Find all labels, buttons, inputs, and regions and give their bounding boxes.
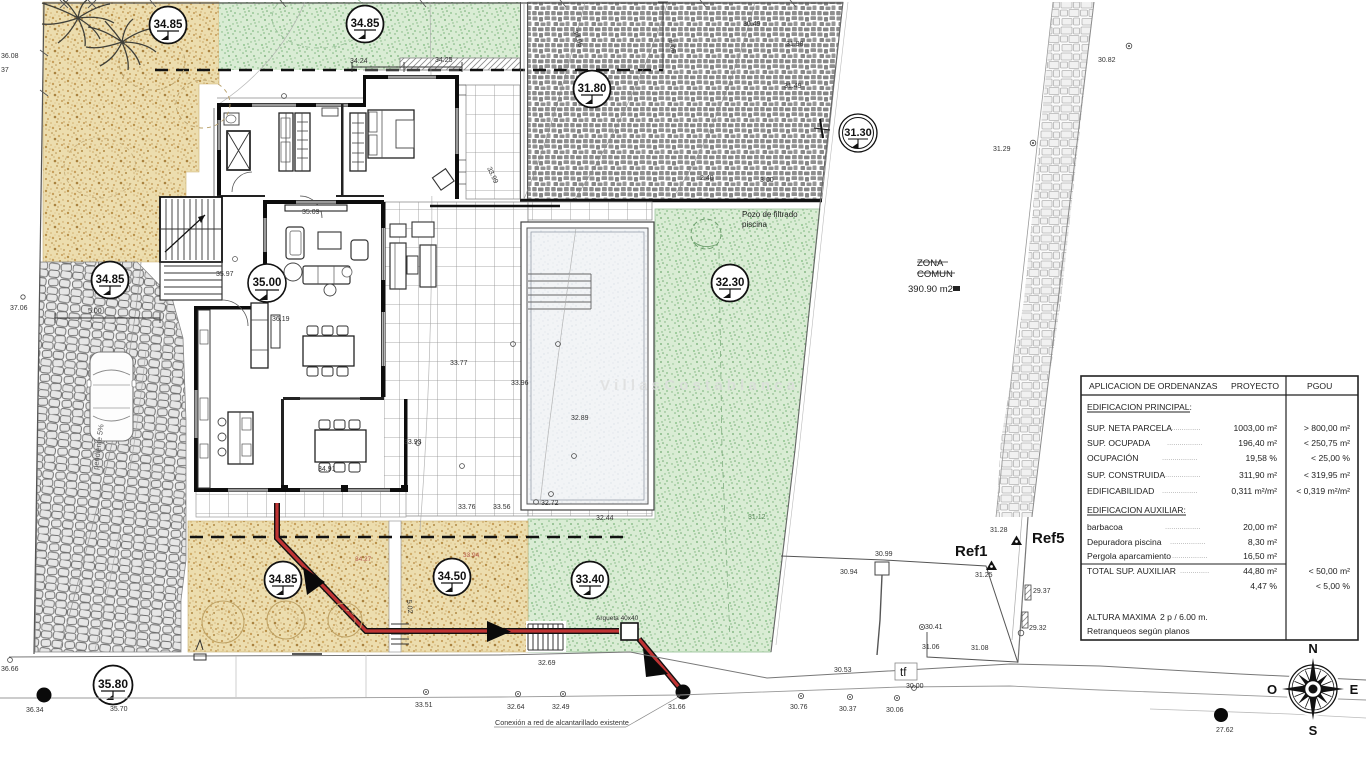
- svg-text:2 p / 6.00 m.: 2 p / 6.00 m.: [1160, 612, 1208, 622]
- svg-text:.................: .................: [1170, 537, 1205, 546]
- svg-text:16,50 m²: 16,50 m²: [1243, 551, 1277, 561]
- svg-text:34.27: 34.27: [355, 556, 372, 563]
- svg-text:30.00: 30.00: [906, 683, 924, 690]
- svg-text:30.76: 30.76: [790, 704, 808, 711]
- svg-text:36.66: 36.66: [1, 666, 19, 673]
- svg-text:5.02: 5.02: [405, 600, 413, 614]
- svg-text:33.40: 33.40: [576, 574, 605, 586]
- svg-text:.................: .................: [1172, 551, 1207, 560]
- svg-text:31.08: 31.08: [971, 645, 989, 652]
- svg-text:< 50,00 m²: < 50,00 m²: [1309, 566, 1350, 576]
- svg-text:..............: ..............: [1180, 566, 1209, 575]
- svg-text:> 800,00 m²: > 800,00 m²: [1304, 423, 1350, 433]
- svg-text:.................: .................: [1162, 453, 1197, 462]
- svg-text:V i l l a s C o s t a b l a n: V i l l a s C o s t a b l a n c a: [600, 377, 796, 394]
- svg-text:34.91: 34.91: [318, 466, 336, 473]
- svg-text:30.94: 30.94: [840, 569, 858, 576]
- svg-text:SUP. CONSTRUIDA: SUP. CONSTRUIDA: [1087, 470, 1165, 480]
- svg-text:30.06: 30.06: [886, 707, 904, 714]
- svg-text:32.49: 32.49: [552, 704, 570, 711]
- svg-text:33.56: 33.56: [493, 504, 511, 511]
- svg-text:2.40: 2.40: [700, 175, 714, 182]
- svg-text:32.30: 32.30: [716, 277, 745, 289]
- svg-text:COMUN: COMUN: [917, 269, 953, 280]
- svg-text:44,80 m²: 44,80 m²: [1243, 566, 1277, 576]
- svg-text:30.99: 30.99: [875, 551, 893, 558]
- svg-text:Conexión a red de alcantarilla: Conexión a red de alcantarillado existen…: [495, 718, 629, 727]
- svg-text:34.50: 34.50: [438, 571, 467, 583]
- svg-text:35.09: 35.09: [302, 209, 320, 216]
- svg-text:35.00: 35.00: [253, 277, 282, 289]
- svg-text:31.29: 31.29: [993, 146, 1011, 153]
- svg-text:< 5,00 %: < 5,00 %: [1316, 581, 1351, 591]
- svg-text:30.49: 30.49: [743, 21, 761, 28]
- svg-text:ALTURA MAXIMA: ALTURA MAXIMA: [1087, 612, 1156, 622]
- svg-text:8,30 m²: 8,30 m²: [1248, 537, 1277, 547]
- svg-text:.................: .................: [1165, 522, 1200, 531]
- svg-text:< 25,00 %: < 25,00 %: [1311, 453, 1350, 463]
- svg-text:29.32: 29.32: [1029, 625, 1047, 632]
- svg-text:31.49: 31.49: [784, 83, 802, 90]
- svg-text:Ref5: Ref5: [1032, 530, 1065, 547]
- svg-text:4,47 %: 4,47 %: [1250, 581, 1277, 591]
- svg-text:30.41: 30.41: [925, 624, 943, 631]
- svg-text:31.28: 31.28: [990, 527, 1008, 534]
- svg-text:Pergola aparcamiento: Pergola aparcamiento: [1087, 551, 1171, 561]
- svg-text:30.53: 30.53: [834, 667, 852, 674]
- svg-text:27.62: 27.62: [1216, 727, 1234, 734]
- svg-text:0,311 m²/m²: 0,311 m²/m²: [1231, 486, 1277, 496]
- svg-text:19,58 %: 19,58 %: [1245, 453, 1277, 463]
- svg-text:30.82: 30.82: [1098, 57, 1116, 64]
- svg-text:.................: .................: [1167, 438, 1202, 447]
- svg-text:EDIFICABILIDAD: EDIFICABILIDAD: [1087, 486, 1154, 496]
- svg-text:< 250,75 m²: < 250,75 m²: [1304, 438, 1350, 448]
- svg-text:36.34: 36.34: [26, 707, 44, 714]
- svg-text:33.96: 33.96: [511, 380, 529, 387]
- svg-text:PGOU: PGOU: [1307, 381, 1332, 391]
- svg-text:PROYECTO: PROYECTO: [1231, 381, 1279, 391]
- svg-text:EDIFICACION PRINCIPAL:: EDIFICACION PRINCIPAL:: [1087, 402, 1192, 412]
- svg-text:33.94: 33.94: [463, 552, 480, 559]
- svg-text:.................: .................: [1162, 486, 1197, 495]
- svg-text:3.00: 3.00: [760, 177, 774, 184]
- svg-text:1003,00 m²: 1003,00 m²: [1234, 423, 1278, 433]
- svg-text:31.66: 31.66: [668, 704, 686, 711]
- svg-text:34.85: 34.85: [351, 18, 380, 30]
- svg-text:34.85: 34.85: [269, 574, 298, 586]
- svg-text:37: 37: [1, 67, 9, 74]
- svg-text:35.97: 35.97: [216, 271, 234, 278]
- svg-text:32.72: 32.72: [541, 500, 559, 507]
- svg-text:34.85: 34.85: [96, 274, 125, 286]
- svg-text:29.37: 29.37: [1033, 588, 1051, 595]
- svg-text:barbacoa: barbacoa: [1087, 522, 1123, 532]
- svg-text:30.37: 30.37: [839, 706, 857, 713]
- svg-text:390.90 m2: 390.90 m2: [908, 284, 953, 295]
- svg-text:31.80: 31.80: [578, 83, 607, 95]
- svg-text:< 319,95 m²: < 319,95 m²: [1304, 470, 1350, 480]
- svg-text:OCUPACIÓN: OCUPACIÓN: [1087, 453, 1138, 463]
- svg-text:196,40 m²: 196,40 m²: [1238, 438, 1277, 448]
- svg-text:20,00 m²: 20,00 m²: [1243, 522, 1277, 532]
- svg-text:ZONA: ZONA: [917, 258, 944, 269]
- svg-text:35.70: 35.70: [110, 706, 128, 713]
- svg-text:Pozo de filtrado: Pozo de filtrado: [742, 210, 798, 219]
- svg-text:piscina: piscina: [742, 220, 767, 229]
- svg-text:S: S: [1309, 723, 1318, 738]
- svg-text:SUP. OCUPADA: SUP. OCUPADA: [1087, 438, 1150, 448]
- svg-text:33.77: 33.77: [450, 360, 468, 367]
- svg-text:.................: .................: [1165, 423, 1200, 432]
- svg-text:32.44: 32.44: [596, 515, 614, 522]
- svg-text:SUP. NETA PARCELA: SUP. NETA PARCELA: [1087, 423, 1172, 433]
- svg-text:O: O: [1267, 682, 1277, 697]
- svg-text:33.93: 33.93: [404, 439, 422, 446]
- svg-text:31.06: 31.06: [922, 644, 940, 651]
- svg-text:34.24: 34.24: [350, 58, 368, 65]
- svg-text:Retranqueos según planos: Retranqueos según planos: [1087, 626, 1190, 636]
- svg-text:31.12: 31.12: [748, 514, 766, 521]
- svg-text:33.51: 33.51: [415, 702, 433, 709]
- svg-text:tf: tf: [900, 667, 907, 679]
- svg-text:APLICACION DE ORDENANZAS: APLICACION DE ORDENANZAS: [1089, 381, 1218, 391]
- svg-text:36.08: 36.08: [1, 53, 19, 60]
- svg-text:35.80: 35.80: [98, 677, 128, 691]
- svg-text:34.25: 34.25: [435, 57, 453, 64]
- svg-text:32.69: 32.69: [538, 660, 556, 667]
- svg-text:E: E: [1350, 682, 1359, 697]
- svg-text:31.30: 31.30: [844, 127, 872, 139]
- svg-text:< 0,319 m²/m²: < 0,319 m²/m²: [1296, 486, 1350, 496]
- svg-text:5.00: 5.00: [88, 308, 102, 315]
- svg-text:31.98: 31.98: [786, 41, 804, 48]
- svg-text:32.89: 32.89: [571, 415, 589, 422]
- svg-text:31.25: 31.25: [975, 572, 993, 579]
- svg-text:TOTAL SUP. AUXILIAR: TOTAL SUP. AUXILIAR: [1087, 566, 1176, 576]
- svg-text:Arqueta 40x40: Arqueta 40x40: [596, 615, 639, 622]
- svg-text:32.64: 32.64: [507, 704, 525, 711]
- svg-text:EDIFICACION AUXILIAR:: EDIFICACION AUXILIAR:: [1087, 505, 1186, 515]
- svg-text:34.85: 34.85: [154, 19, 183, 31]
- svg-text:Ref1: Ref1: [955, 543, 988, 560]
- svg-text:.................: .................: [1165, 470, 1200, 479]
- svg-text:37.06: 37.06: [10, 305, 28, 312]
- svg-text:311,90 m²: 311,90 m²: [1239, 470, 1277, 480]
- svg-text:33.76: 33.76: [458, 504, 476, 511]
- svg-text:Depuradora piscina: Depuradora piscina: [1087, 537, 1162, 547]
- svg-text:N: N: [1308, 641, 1317, 656]
- svg-text:36.19: 36.19: [272, 316, 290, 323]
